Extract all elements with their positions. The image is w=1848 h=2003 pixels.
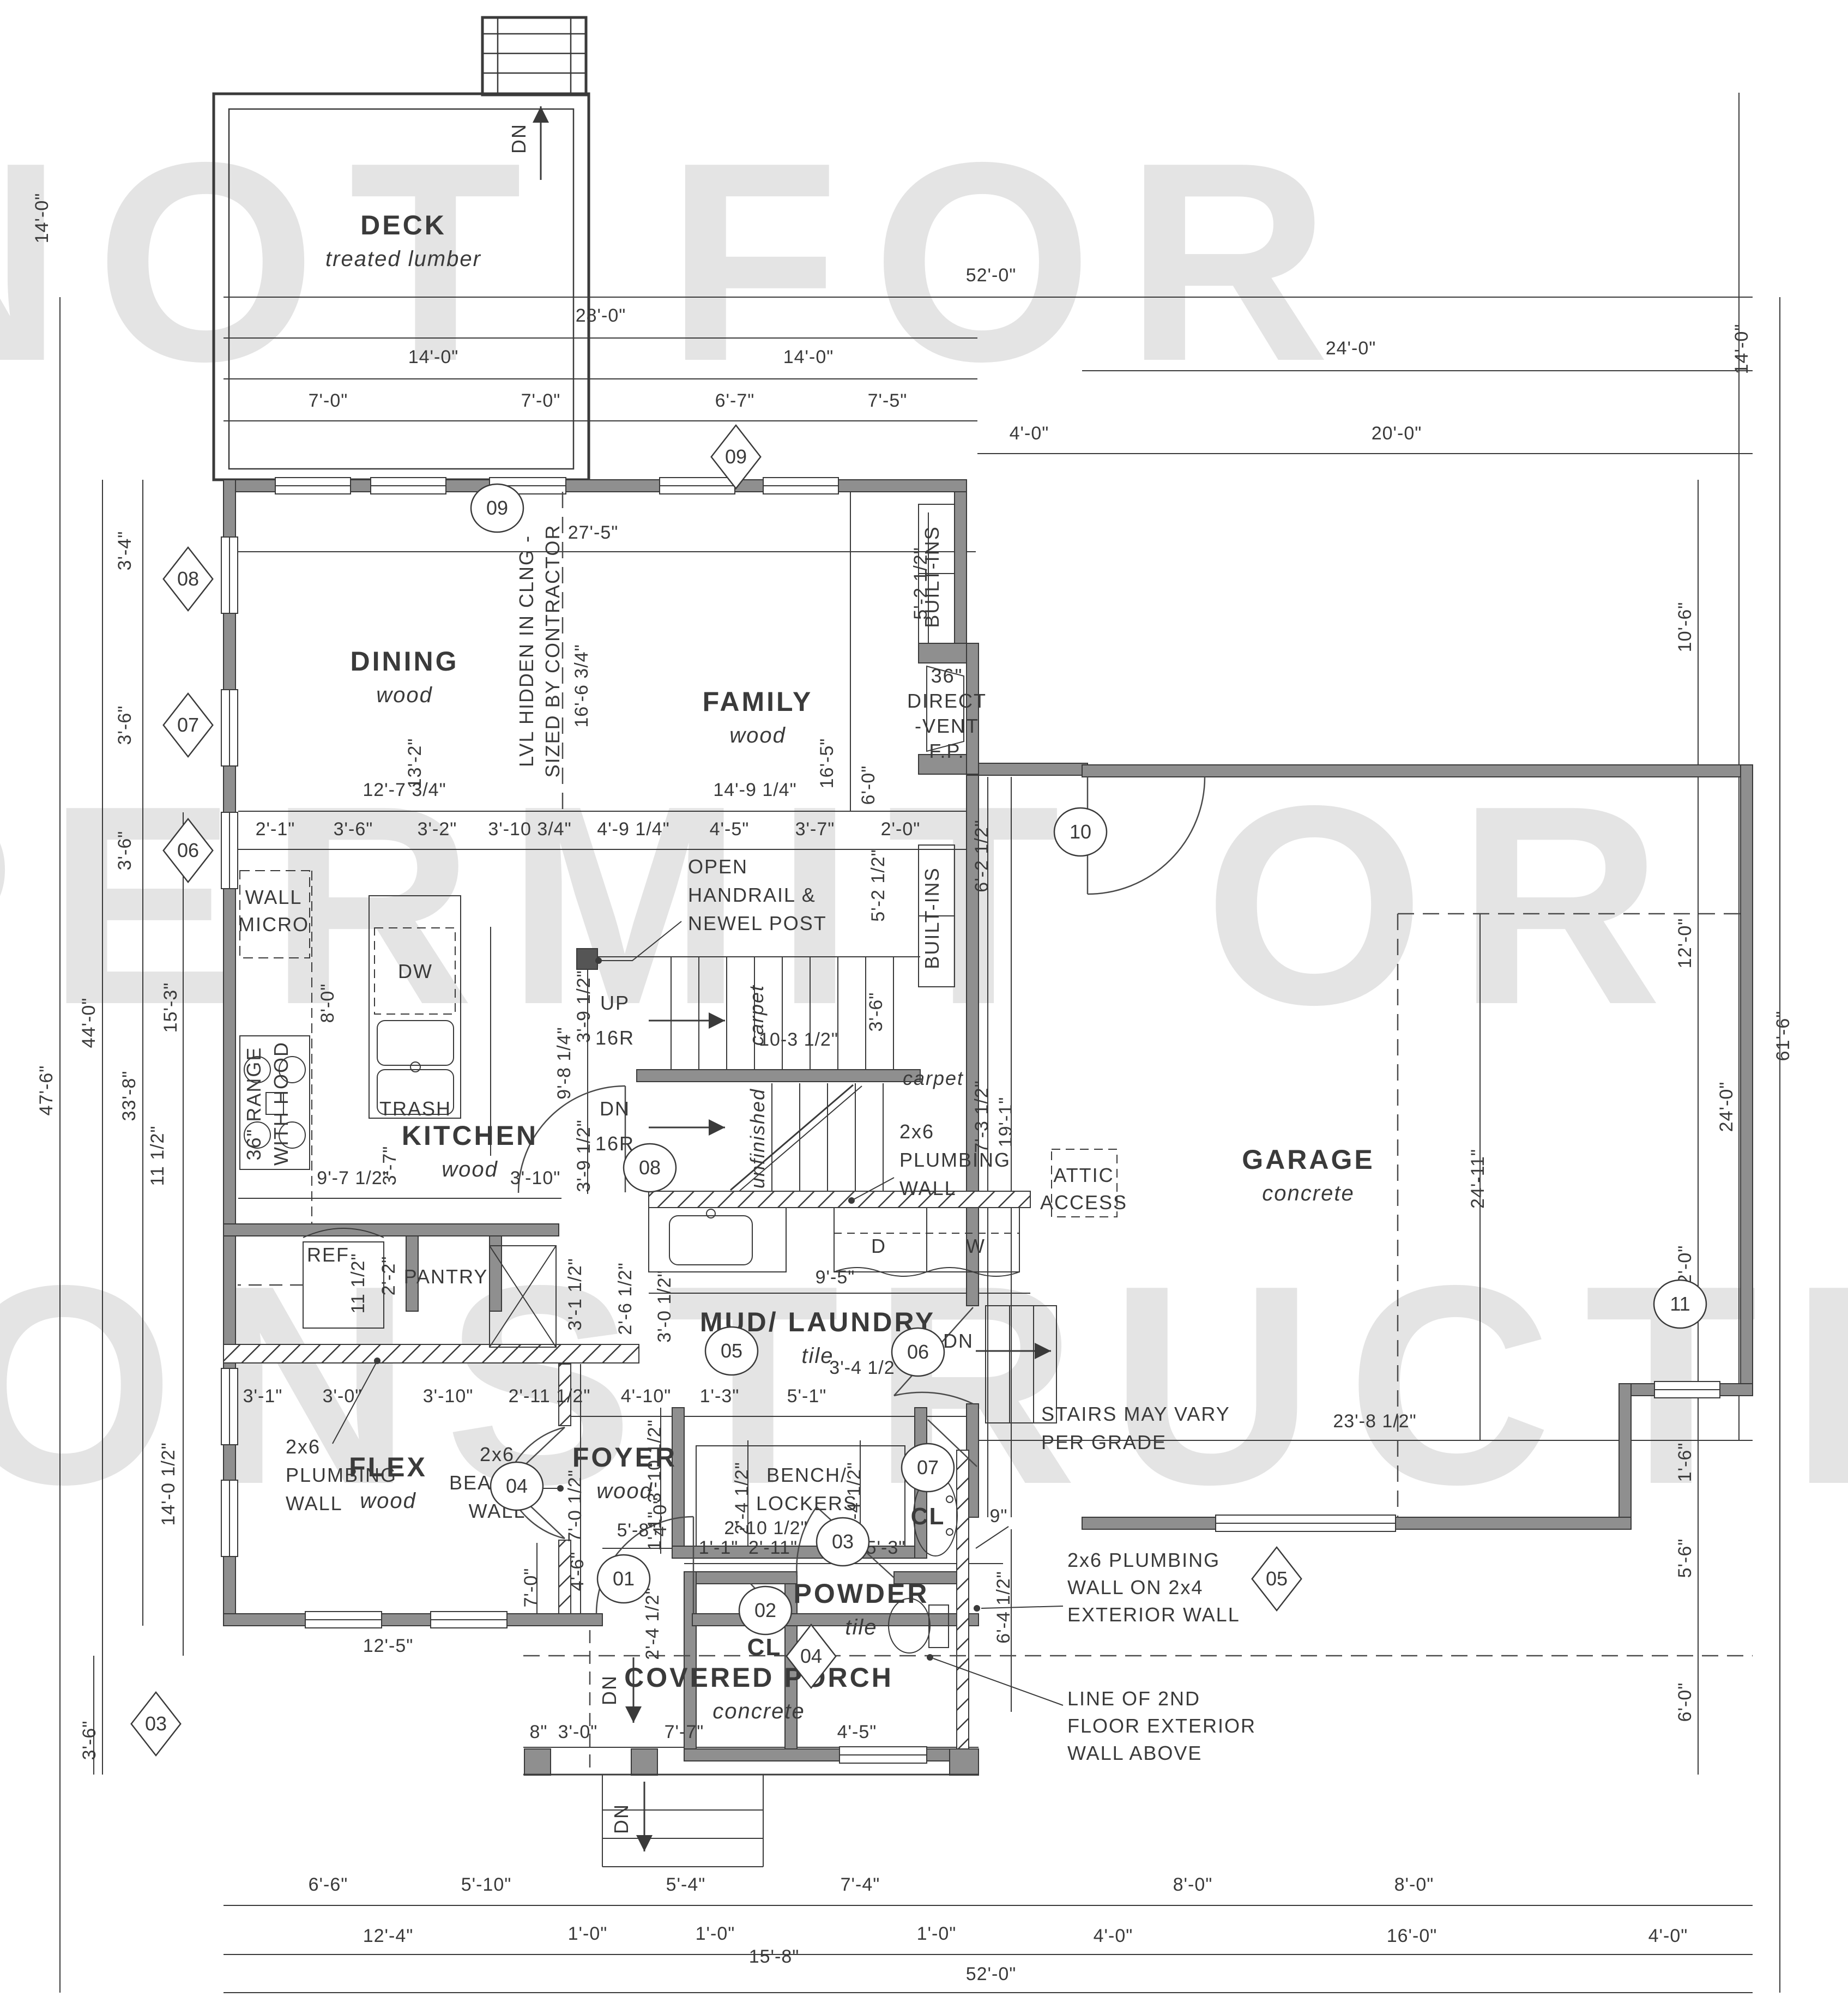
window [221,1368,238,1445]
annotation-text: EXTERIOR WALL [1067,1603,1240,1626]
dimension-text: 2'-11" [748,1537,798,1558]
room-material-label: wood [360,1489,416,1513]
dimension-text: 3'-1" [243,1386,283,1407]
dimension-text: 5'-2 1/2" [868,849,889,921]
room-material-label: wood [442,1157,498,1181]
dimension-text: 3'-6" [114,705,135,745]
dimension-text: 44'-0" [78,998,99,1048]
dimension-text: 14'-0 1/2" [158,1442,179,1525]
annotation-text: SIZED BY CONTRACTOR [541,524,564,778]
dimension-text: 7'-3 1/2" [971,1080,992,1153]
annotation-text: OPEN [688,855,748,878]
annotation-text: 2x6 PLUMBING [1067,1549,1220,1571]
room-label: COVERED PORCH [624,1662,893,1693]
callout-circle-11: 11 [1654,1280,1706,1328]
dimension-text: 7'-0" [521,390,561,411]
dimension-text: 1'-3" [700,1386,740,1407]
annotation-text: LINE OF 2ND [1067,1687,1200,1710]
dimension-text: 23'-8 1/2" [1333,1411,1416,1432]
room-material-label: tile [845,1615,877,1639]
callout-circle-03: 03 [817,1518,869,1566]
window [275,478,351,494]
dimension-text: 6'-0" [1675,1682,1695,1722]
annotation-text: ATTIC [1053,1164,1114,1186]
dimension-text: 3'-0" [323,1386,363,1407]
callout-circle-09: 09 [471,484,523,532]
annotation-text: PANTRY [404,1265,488,1288]
annotation-text: WALL [899,1177,957,1199]
annotation-text: 2x6 [286,1435,321,1458]
room-label: POWDER [794,1578,929,1609]
callout-circle-text: 10 [1070,820,1091,843]
annotation-text: TRASH [379,1097,451,1120]
annotation-text: REF [307,1244,349,1266]
dimension-text: 27'-5" [568,522,619,543]
annotation-text: WITH HOOD [270,1041,292,1166]
dimension-text: 4'-0" [1010,423,1049,444]
dimension-text: 15'-8" [749,1946,800,1967]
dimension-text: 5'-6" [1675,1539,1695,1578]
window [221,1480,238,1556]
annotation-text: HANDRAIL & [688,884,816,906]
annotation-text: DW [398,960,433,982]
dimension-text: 2'-4 1/2" [732,1462,752,1534]
window [431,1612,507,1628]
dimension-text: 3'-10 3/4" [488,819,571,840]
annotation-text: DN [508,123,530,154]
window [221,812,238,889]
window [763,478,838,494]
annotation-text: DN [598,1675,620,1705]
room-label: GARAGE [1242,1144,1374,1175]
dimension-text: 24'-11" [1467,1149,1488,1209]
newel-post [577,949,597,969]
dimension-text: 19'-1" [995,1097,1016,1148]
dimension-text: 3'-6" [114,831,135,871]
dimension-text: 5'-4" [666,1874,706,1895]
callout-diamond-text: 07 [177,714,199,736]
annotation-text: PLUMBING [899,1149,1011,1171]
annotation-text: WALL [286,1492,343,1515]
annotation-text: BENCH/ [766,1464,847,1486]
dimension-text: 14'-0" [1731,324,1752,375]
dimension-text: 6'-6" [309,1874,348,1895]
dimension-text: 8'-0" [1173,1874,1213,1895]
dimension-text: 3'-10" [510,1168,561,1188]
window [660,478,735,494]
dimension-text: 3'-10 1/2" [644,1419,665,1503]
annotation-text: carpet [903,1067,964,1089]
watermark-line-1: NOT FOR [0,104,1363,420]
dimension-text: 13'-2" [404,738,425,789]
dimension-text: 9'-8 1/4" [554,1027,575,1099]
dimension-text: 12'-0" [1675,918,1695,969]
dimension-text: 14'-0" [783,347,834,367]
callout-circle-07: 07 [902,1444,954,1492]
window [305,1612,382,1628]
dimension-text: 16'-6 3/4" [571,644,592,727]
dimension-text: 4'-5" [837,1722,877,1742]
dimension-text: 24'-0" [1716,1082,1737,1132]
dimension-text: 2'-11 1/2" [509,1386,591,1407]
callout-circle-text: 02 [754,1599,776,1621]
dimension-text: 8" [530,1722,548,1742]
dimension-text: 11 1/2" [348,1253,369,1313]
dimension-text: 3'-0 1/2" [654,1270,675,1342]
dimension-text: 9'-7 1/2" [317,1168,389,1188]
dimension-text: 6'-4 1/2" [993,1571,1014,1643]
dimension-text: 2'-1" [256,819,295,840]
annotation-text: 36" RANGE [243,1047,265,1161]
dimension-text: 24'-0" [1326,338,1376,359]
dimension-text: 3'-6" [866,992,886,1032]
annotation-text: LVL HIDDEN IN CLNG - [515,535,538,767]
dimension-text: 4'-0" [1094,1926,1133,1946]
dimension-text: 14'-0" [408,347,459,367]
dimension-text: 10-3 1/2" [759,1029,838,1050]
dimension-text: 3'-1 1/2" [565,1258,585,1330]
callout-circle-text: 09 [486,497,508,519]
callout-diamond-text: 05 [1266,1567,1288,1590]
callout-diamond-text: 06 [177,839,199,861]
annotation-text: 2x6 [480,1443,515,1465]
dimension-text: 2'-2" [378,1256,399,1296]
callout-circle-04: 04 [491,1462,543,1510]
annotation-text: unfinished [746,1088,769,1188]
dimension-text: 61'-6" [1773,1011,1793,1061]
room-material-label: treated lumber [325,247,481,271]
dimension-text: 4'-10" [621,1386,672,1407]
dimension-text: 12'-4" [363,1926,414,1946]
callout-diamond-text: 09 [725,445,747,468]
annotation-text: PLUMBING [286,1464,397,1486]
dimension-text: 3'-9 1/2" [573,1119,594,1192]
dimension-text: 2'-6 1/2" [615,1262,636,1335]
annotation-text: DIRECT [907,690,987,712]
dimension-text: 16'-5" [817,738,837,789]
annotation-text: F.P. [929,740,964,762]
dimension-text: 6'-0" [858,765,879,805]
callout-circle-01: 01 [597,1555,650,1603]
dimension-text: 8'-0" [1394,1874,1434,1895]
dimension-text: 8'-0" [317,984,338,1023]
dimension-text: 9" [990,1506,1008,1527]
dimension-text: 4'-0" [1648,1926,1688,1946]
callout-circle-text: 03 [832,1530,854,1553]
dimension-text: 1'-6" [1675,1443,1695,1482]
annotation-text: DN [943,1330,974,1352]
dimension-text: 11 1/2" [147,1125,168,1186]
porch-post [950,1749,979,1775]
annotation-text: 16R [595,1027,635,1049]
callout-diamond-text: 08 [177,568,199,590]
annotation-text: W [966,1235,986,1257]
callout-circle-text: 06 [907,1341,929,1363]
dimension-text: 6'-7" [715,390,755,411]
annotation-text: WALL ABOVE [1067,1742,1202,1764]
room-label: DECK [360,210,446,240]
porch-post [524,1749,551,1775]
dimension-text: 5'-10" [461,1874,512,1895]
dimension-text: 7'-0" [521,1568,541,1608]
annotation-text: 16R [595,1132,635,1155]
window [221,690,238,766]
floor-plan-sheet: NOT FOR PERMIT OR CONSTRUCTION [0,0,1848,2003]
callout-diamond-text: 03 [145,1712,167,1735]
annotation-text: FLOOR EXTERIOR [1067,1715,1256,1737]
callout-circle-text: 07 [917,1456,939,1479]
annotation-text: ACCESS [1040,1191,1127,1214]
dimension-text: 7'-7" [665,1722,704,1742]
annotation-text: PER GRADE [1041,1431,1167,1453]
dimension-text: 1'-1" [699,1537,739,1558]
annotation-text: carpet [745,985,768,1046]
annotation-text: LOCKERS [756,1492,857,1515]
dimension-text: 10'-6" [1675,602,1695,653]
room-label: KITCHEN [402,1120,538,1151]
dimension-text: 2'-0" [881,819,921,840]
dimension-text: 3'-4" [114,531,135,571]
dimension-text: 52'-0" [966,1964,1017,1984]
callout-circle-02: 02 [739,1586,792,1634]
dimension-text: 4'-9 1/4" [597,819,669,840]
annotation-text: STAIRS MAY VARY [1041,1403,1230,1425]
annotation-text: CL [747,1634,782,1661]
annotation-text: CL [911,1503,945,1530]
callout-circle-08: 08 [624,1144,676,1192]
dimension-text: 52'-0" [966,265,1017,286]
dimension-text: 1'-0" [568,1923,608,1944]
dimension-text: 4'-5" [710,819,750,840]
dimension-text: 3'-10" [423,1386,474,1407]
dimension-text: 1'-0" [917,1923,957,1944]
dimension-text: 4'-6" [567,1552,588,1591]
dimension-text: 3'-7" [379,1146,400,1186]
callout-circle-text: 05 [721,1340,742,1362]
window [371,478,446,494]
callout-circle-text: 08 [639,1156,661,1179]
dimension-text: 4'-0" [650,1497,671,1537]
dimension-text: 33'-8" [119,1071,140,1121]
room-material-label: concrete [712,1699,805,1723]
dimension-text: 3'-4 1/2" [829,1358,902,1378]
room-material-label: wood [729,723,786,747]
dimension-text: 5'-3" [866,1537,906,1558]
window [840,1747,927,1763]
window [221,537,238,613]
window [1654,1381,1720,1398]
room-label: FAMILY [703,686,813,717]
dimension-text: 3'-6" [79,1721,100,1760]
dimension-text: 1'-0" [696,1923,735,1944]
annotation-text: 36" [931,665,963,687]
callout-circle-text: 01 [613,1567,635,1590]
dimension-text: 7'-0" [309,390,348,411]
dimension-text: 20'-0" [1372,423,1422,444]
dimension-text: 7'-5" [868,390,908,411]
annotation-text: BUILT-INS [921,526,943,628]
annotation-text: D [871,1235,886,1257]
dimension-text: 3'-6" [334,819,373,840]
dimension-text: 3'-9 1/2" [573,970,594,1042]
annotation-text: DN [610,1803,632,1834]
dimension-text: 3'-0" [558,1722,598,1742]
callout-circle-10: 10 [1054,808,1107,856]
callout-diamond-text: 04 [800,1645,822,1667]
window [1216,1515,1396,1531]
annotation-text: MICRO [238,913,309,936]
dimension-text: 7'-0 1/2" [565,1469,585,1542]
annotation-text: -VENT [915,715,979,737]
room-material-label: wood [376,683,433,707]
dimension-text: 14'-9 1/4" [713,780,796,800]
dimension-text: 15'-3" [160,982,181,1033]
annotation-text: BUILT-INS [921,867,943,969]
annotation-text: UP [600,992,630,1014]
dimension-text: 16'-0" [1387,1926,1438,1946]
dimension-text: 12'-5" [363,1636,414,1656]
dimension-text: 3'-2" [418,819,457,840]
dimension-text: 2'-4 1/2" [642,1587,663,1660]
callout-circle-text: 04 [506,1475,528,1497]
callout-circle-text: 11 [1670,1293,1690,1315]
annotation-text: DN [600,1097,630,1120]
dimension-text: 14'-0" [32,193,52,244]
annotation-text: WALL ON 2x4 [1067,1576,1203,1598]
annotation-text: 2x6 [899,1120,934,1143]
room-material-label: concrete [1262,1181,1354,1205]
dimension-text: 5'-1" [787,1386,827,1407]
callout-circle-06: 06 [892,1328,944,1376]
dimension-text: 9'-5" [816,1267,855,1288]
porch-post [631,1749,657,1775]
dimension-text: 3'-7" [795,819,835,840]
dimension-text: 6'-2 1/2" [971,819,992,892]
callout-circle-05: 05 [705,1327,758,1375]
annotation-text: WALL [245,886,303,908]
room-label: DINING [351,646,459,677]
dimension-text: 28'-0" [576,305,626,326]
dimension-text: 47'-6" [36,1065,57,1116]
annotation-text: NEWEL POST [688,912,827,934]
dimension-text: 7'-4" [841,1874,880,1895]
